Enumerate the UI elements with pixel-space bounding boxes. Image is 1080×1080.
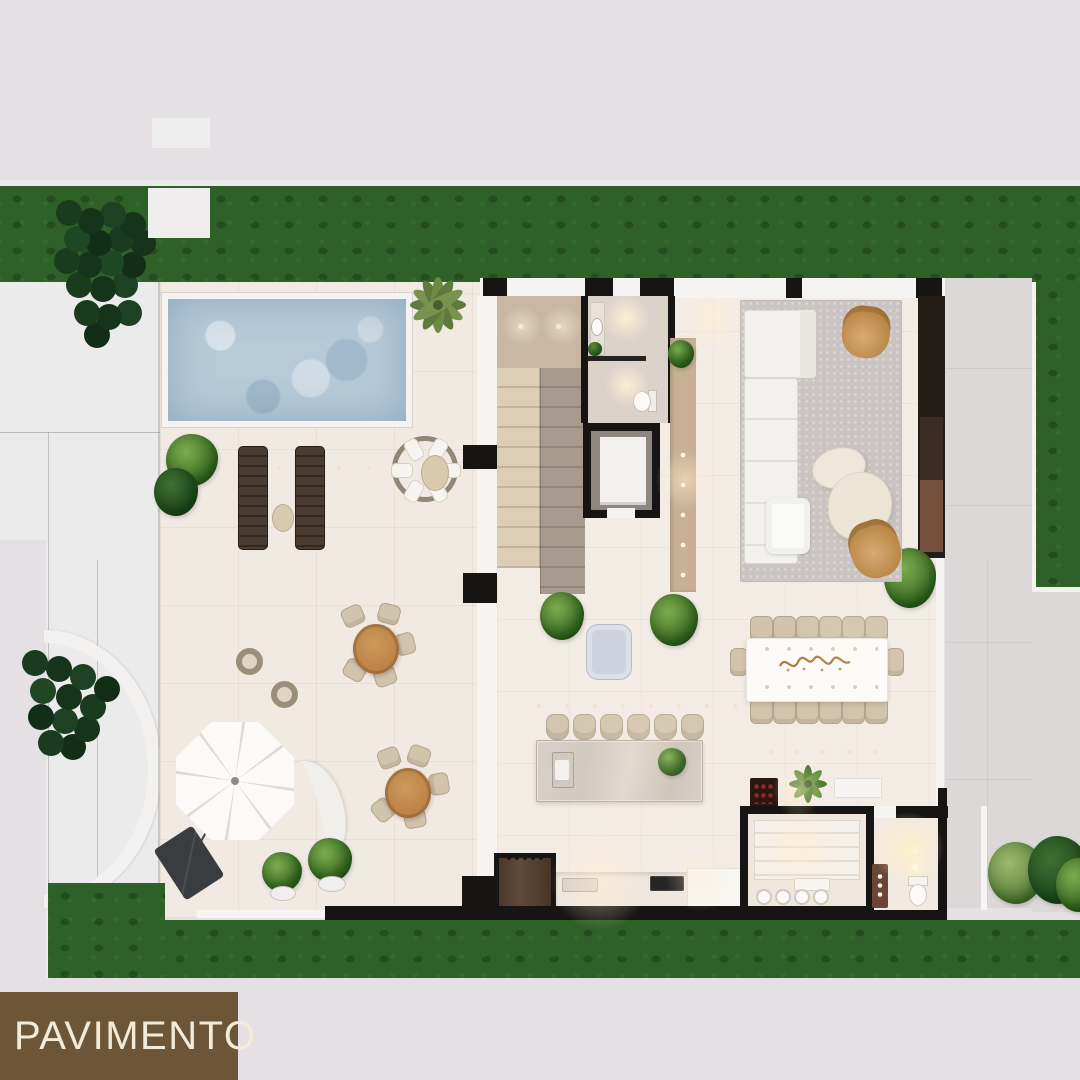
wc-door-gap — [874, 806, 896, 818]
dining-chair — [886, 648, 904, 676]
sun-lounger — [238, 446, 268, 550]
floor-light-row — [525, 702, 745, 710]
wc-toilet-bowl — [909, 884, 927, 906]
right-wall — [936, 558, 944, 808]
entry-walk-upper — [152, 118, 210, 148]
palm-tree — [405, 272, 471, 338]
terrace-step — [197, 910, 325, 918]
elevator-car — [600, 437, 646, 505]
caption-text: PAVIMENTO — [0, 992, 238, 1080]
daybed-pouf — [421, 455, 449, 491]
stair-flight-lower — [540, 368, 585, 594]
front-trees — [56, 200, 82, 226]
landing-light — [556, 324, 561, 329]
wine-bottles — [753, 782, 775, 804]
wc-sconce — [912, 848, 918, 854]
plant-pot — [270, 886, 296, 901]
side-table — [766, 498, 810, 554]
bar-stool — [573, 714, 596, 740]
toilet-bowl — [633, 391, 651, 412]
sun-lounger — [295, 446, 325, 550]
outdoor-dining-set — [344, 612, 408, 688]
place-settings — [756, 684, 878, 690]
door-jamb — [463, 573, 497, 603]
caption-box: PAVIMENTO — [0, 992, 238, 1080]
wall-segment — [483, 278, 507, 298]
wc-sconce — [912, 864, 918, 870]
kitchen-sink — [562, 878, 598, 892]
rattan-pouf — [271, 681, 298, 708]
wc-orchid — [875, 872, 885, 900]
bar-stool — [600, 714, 623, 740]
wall-segment — [585, 278, 613, 298]
counter-return — [687, 868, 745, 910]
floor-light-row — [758, 748, 883, 756]
bar-stool — [627, 714, 650, 740]
wall-segment — [786, 278, 802, 298]
sink — [591, 318, 603, 336]
rear-lawn-patch — [48, 883, 165, 978]
rattan-pouf — [236, 648, 263, 675]
path-joint — [946, 642, 1032, 643]
bar-stool — [546, 714, 569, 740]
pantry-shelving — [754, 820, 860, 880]
stair-landing — [497, 296, 585, 368]
path-joint — [946, 779, 1032, 780]
front-wall — [480, 278, 945, 298]
sidewalk-strip — [0, 540, 46, 992]
path-joint — [987, 560, 988, 905]
island-sink-basin — [555, 760, 569, 780]
parasol-cap — [231, 777, 239, 785]
powder-room-divider — [588, 356, 646, 361]
cooktop — [650, 876, 684, 891]
pantry-jar — [756, 889, 772, 905]
wall-segment — [640, 278, 674, 298]
stair-flight-upper — [497, 368, 540, 568]
entry-walk-pad — [148, 188, 210, 238]
path-joint — [946, 368, 1032, 369]
terrace-boundary — [158, 282, 160, 918]
pantry-counter — [834, 778, 882, 798]
media-wall-wood — [920, 480, 943, 552]
door-jamb — [463, 445, 497, 469]
table-centerpiece — [774, 650, 858, 678]
lounger-side-table — [272, 504, 294, 532]
landing-light — [518, 324, 523, 329]
bar-stool — [654, 714, 677, 740]
sofa-chaise — [744, 310, 816, 378]
outdoor-table — [353, 624, 399, 674]
pantry-jar — [794, 889, 810, 905]
garden-bushes — [22, 650, 48, 676]
swimming-pool — [162, 293, 412, 427]
pantry-palm — [786, 762, 830, 806]
console-lights — [679, 440, 687, 590]
floor-plan-canvas: PAVIMENTO — [0, 0, 1080, 1080]
outdoor-table — [385, 768, 431, 818]
path-joint — [946, 505, 1032, 506]
pantry-jar — [775, 889, 791, 905]
media-wall-cabinet — [920, 417, 943, 480]
ottoman-square — [586, 624, 632, 680]
wc-wall — [938, 788, 947, 918]
powder-room-wall — [581, 296, 588, 423]
side-path — [945, 278, 1032, 908]
driveway-joint — [0, 432, 160, 433]
pantry-jar — [813, 889, 829, 905]
plant-pot — [318, 876, 346, 892]
outdoor-dining-set — [376, 756, 440, 832]
exterior-wall-stub — [981, 806, 987, 910]
rear-lawn-strip — [163, 920, 1080, 978]
left-wall — [477, 296, 497, 918]
cabinet-knobs — [505, 855, 547, 861]
side-lawn-planter — [1030, 282, 1080, 594]
elevator-door-gap — [607, 508, 635, 518]
bar-stool — [681, 714, 704, 740]
daybed-cushion — [391, 463, 413, 478]
wall-segment — [916, 278, 942, 298]
